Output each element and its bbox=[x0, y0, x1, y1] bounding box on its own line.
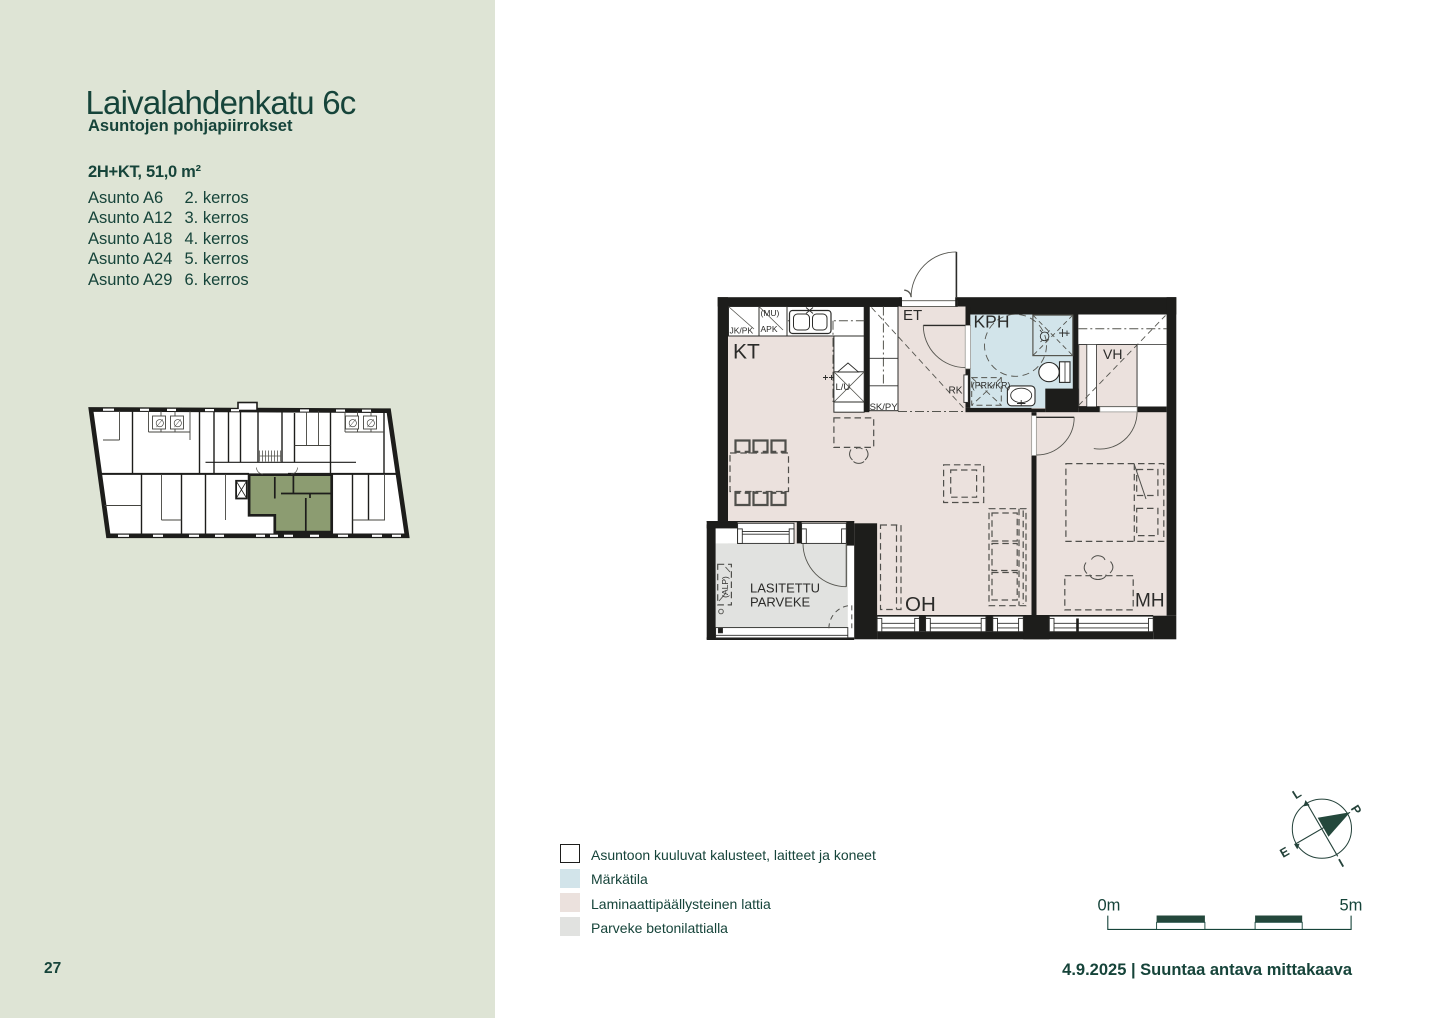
svg-text:KT: KT bbox=[733, 341, 760, 364]
svg-text:I: I bbox=[1336, 856, 1346, 870]
svg-text:APK: APK bbox=[761, 324, 778, 334]
svg-text:∅: ∅ bbox=[348, 418, 358, 430]
svg-text:PARVEKE: PARVEKE bbox=[750, 595, 811, 610]
svg-text:SK/PY: SK/PY bbox=[870, 402, 899, 413]
svg-text:RK: RK bbox=[949, 386, 963, 397]
svg-text:KPH: KPH bbox=[974, 312, 1010, 332]
svg-text:L: L bbox=[1290, 786, 1304, 802]
svg-text:L/U: L/U bbox=[836, 382, 851, 393]
svg-text:(PRK/KR): (PRK/KR) bbox=[972, 381, 1011, 391]
svg-text:5m: 5m bbox=[1340, 897, 1363, 915]
svg-text:MH: MH bbox=[1135, 591, 1165, 612]
svg-text:(ALP): (ALP) bbox=[720, 576, 730, 598]
svg-text:E: E bbox=[1278, 844, 1292, 860]
svg-text:OH: OH bbox=[905, 593, 936, 616]
svg-text:0m: 0m bbox=[1098, 897, 1121, 915]
svg-text:∅: ∅ bbox=[173, 418, 183, 430]
svg-text:∅: ∅ bbox=[366, 418, 376, 430]
svg-text:P: P bbox=[1348, 803, 1364, 817]
svg-text:VH: VH bbox=[1103, 346, 1122, 362]
svg-text:∅: ∅ bbox=[155, 418, 165, 430]
svg-text:ET: ET bbox=[903, 307, 922, 324]
svg-text:(MU): (MU) bbox=[761, 308, 780, 318]
svg-text:LASITETTU: LASITETTU bbox=[750, 581, 820, 596]
svg-text:JK/PK: JK/PK bbox=[730, 326, 754, 336]
